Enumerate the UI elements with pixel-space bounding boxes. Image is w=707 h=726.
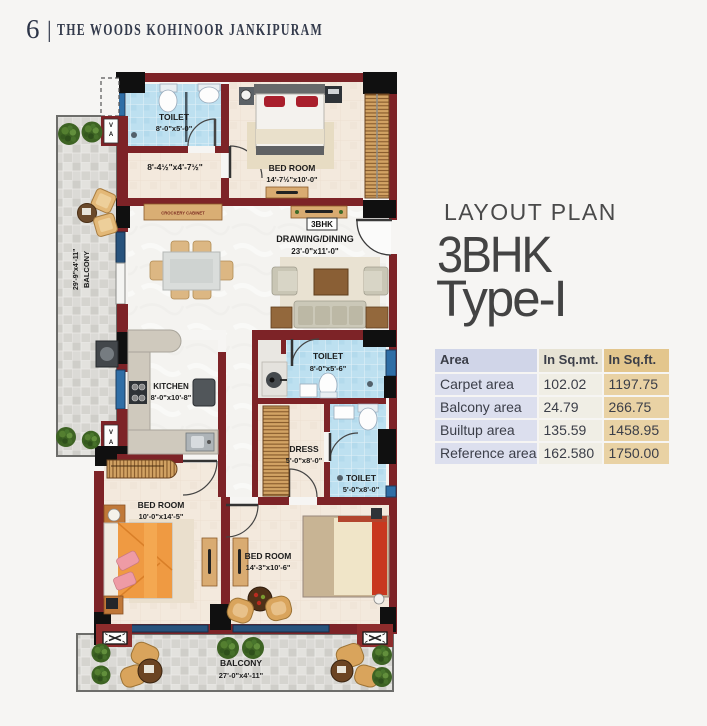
svg-text:14'-7½"x10'-0": 14'-7½"x10'-0": [266, 175, 318, 184]
svg-text:3BHK: 3BHK: [311, 220, 333, 229]
svg-text:5'-0"x8'-0": 5'-0"x8'-0": [286, 456, 323, 465]
svg-text:14'-3"x10'-6": 14'-3"x10'-6": [246, 563, 291, 572]
svg-text:27'-0"x4'-11": 27'-0"x4'-11": [219, 671, 264, 680]
svg-text:5'-0"x8'-0": 5'-0"x8'-0": [343, 485, 380, 494]
svg-text:A: A: [109, 440, 114, 446]
svg-text:BED ROOM: BED ROOM: [269, 163, 316, 173]
svg-text:DRAWING/DINING: DRAWING/DINING: [276, 234, 354, 244]
svg-text:8'-0"x10'-8": 8'-0"x10'-8": [151, 393, 192, 402]
svg-text:BED ROOM: BED ROOM: [245, 551, 292, 561]
svg-text:23'-0"x11'-0": 23'-0"x11'-0": [291, 247, 339, 256]
svg-text:KITCHEN: KITCHEN: [153, 382, 189, 391]
svg-text:V: V: [109, 123, 113, 129]
svg-text:V: V: [109, 430, 113, 436]
svg-text:TOILET: TOILET: [159, 112, 190, 122]
svg-text:8'-4½"x4'-7½": 8'-4½"x4'-7½": [147, 162, 203, 172]
svg-text:8'-0"x5'-6": 8'-0"x5'-6": [310, 364, 347, 373]
svg-text:TOILET: TOILET: [313, 351, 344, 361]
svg-text:8'-0"x5'-0": 8'-0"x5'-0": [156, 124, 193, 133]
svg-text:29'-9"x4'-11": 29'-9"x4'-11": [73, 249, 80, 291]
svg-text:TOILET: TOILET: [346, 473, 377, 483]
svg-text:BALCONY: BALCONY: [82, 251, 91, 288]
svg-text:BED ROOM: BED ROOM: [138, 500, 185, 510]
svg-text:10'-0"x14'-5": 10'-0"x14'-5": [139, 512, 184, 521]
svg-text:BALCONY: BALCONY: [220, 658, 262, 668]
svg-text:CROCKERY CABINET: CROCKERY CABINET: [161, 211, 205, 216]
svg-text:DRESS: DRESS: [289, 444, 319, 454]
svg-text:A: A: [109, 132, 114, 138]
